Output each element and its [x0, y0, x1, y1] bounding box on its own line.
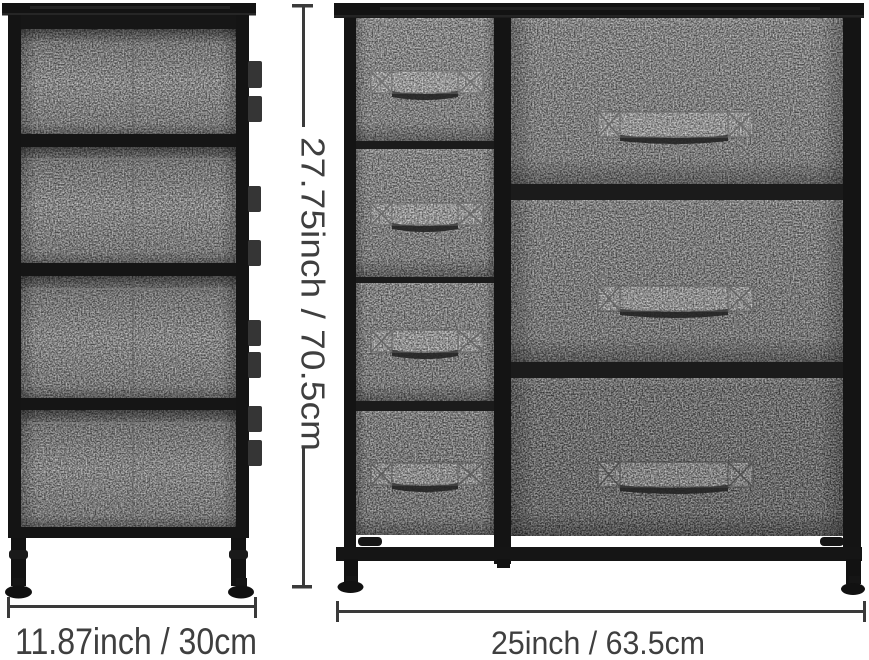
svg-text:11.87inch / 30cm: 11.87inch / 30cm: [15, 621, 257, 660]
svg-text:25inch / 63.5cm: 25inch / 63.5cm: [491, 625, 705, 660]
svg-text:27.75inch / 70.5cm: 27.75inch / 70.5cm: [295, 137, 332, 451]
